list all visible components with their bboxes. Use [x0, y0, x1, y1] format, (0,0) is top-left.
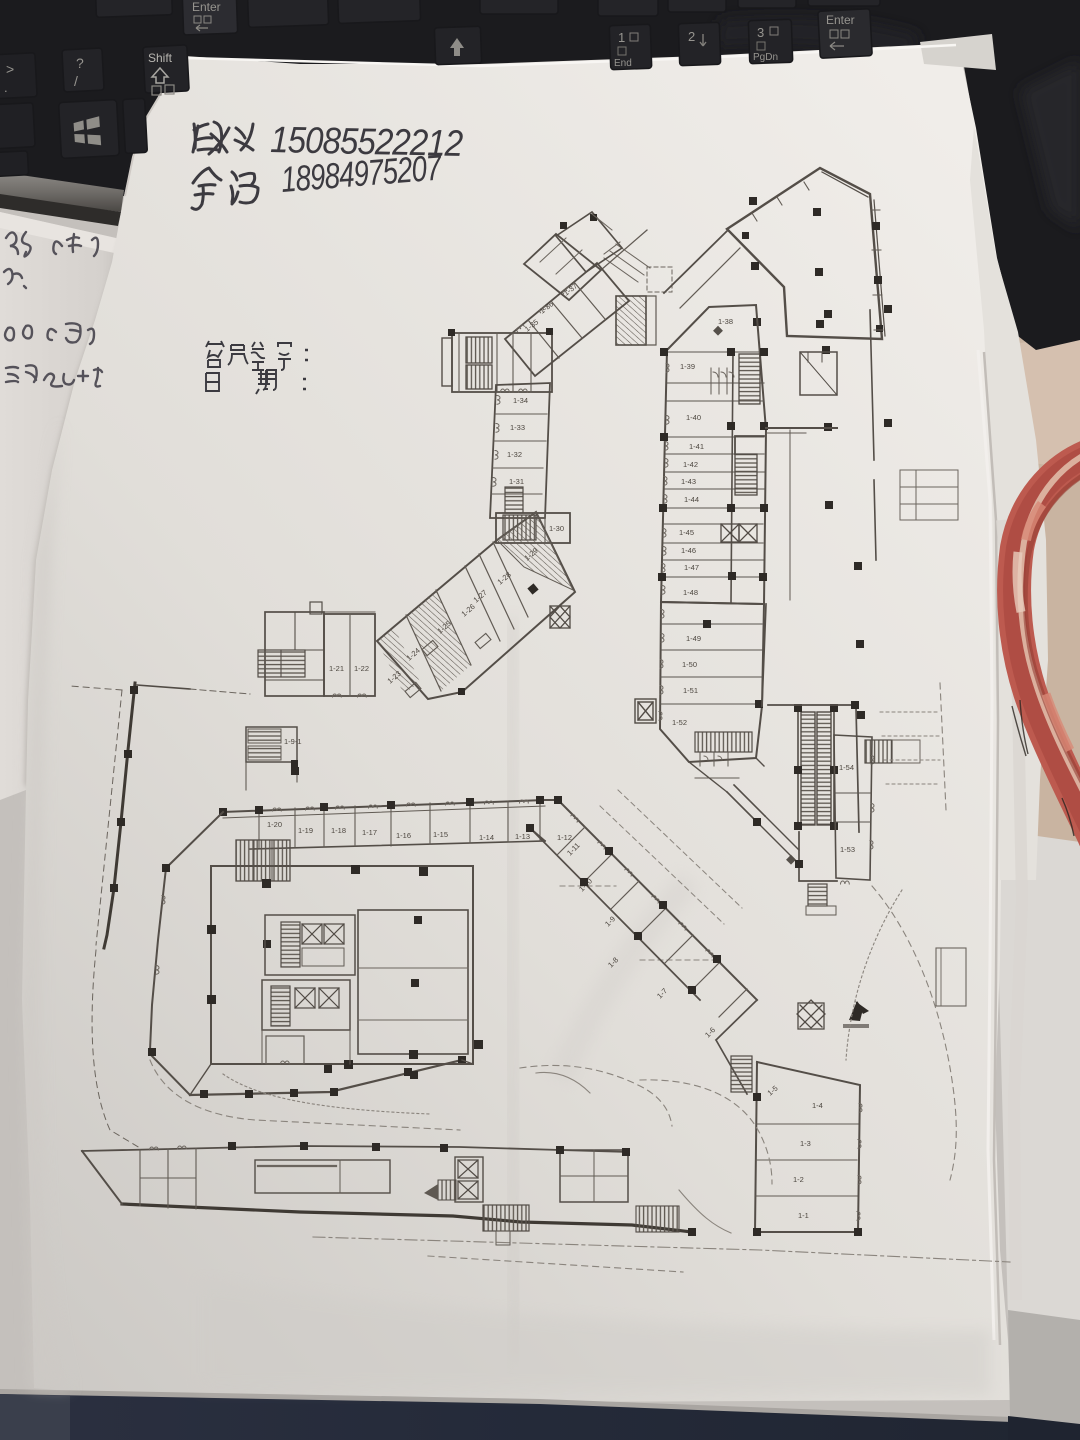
svg-text:1-53: 1-53: [840, 845, 855, 854]
svg-text:1-1: 1-1: [798, 1211, 809, 1220]
svg-text:1-39: 1-39: [680, 362, 695, 371]
svg-text:1-4: 1-4: [812, 1101, 823, 1110]
svg-text:.: .: [4, 80, 8, 95]
svg-text:3: 3: [757, 25, 764, 40]
svg-text:1-46: 1-46: [681, 546, 696, 555]
svg-text:1-15: 1-15: [433, 830, 448, 839]
svg-text:1-33: 1-33: [510, 423, 525, 432]
svg-text:Enter: Enter: [826, 13, 855, 27]
svg-text:1-41: 1-41: [689, 442, 704, 451]
svg-text:1-49: 1-49: [686, 634, 701, 643]
svg-text:1-48: 1-48: [683, 588, 698, 597]
svg-text:1-22: 1-22: [354, 664, 369, 673]
svg-text:Shift: Shift: [148, 51, 173, 65]
svg-text:1-47: 1-47: [684, 563, 699, 572]
svg-text:Enter: Enter: [192, 0, 221, 14]
svg-text:1-50: 1-50: [682, 660, 697, 669]
svg-text:End: End: [614, 58, 632, 69]
svg-text:1-34: 1-34: [513, 396, 528, 405]
svg-text:1-45: 1-45: [679, 528, 694, 537]
svg-text:1-17: 1-17: [362, 828, 377, 837]
svg-text:1-13: 1-13: [515, 832, 530, 841]
svg-text:1-14: 1-14: [479, 833, 494, 842]
svg-text:1-31: 1-31: [509, 477, 524, 486]
svg-text:1-9-1: 1-9-1: [284, 737, 302, 746]
svg-text:>: >: [6, 61, 14, 77]
svg-text:1-32: 1-32: [507, 450, 522, 459]
svg-text:1-20: 1-20: [267, 820, 282, 829]
svg-text:1-12: 1-12: [557, 833, 572, 842]
svg-text:1-40: 1-40: [686, 413, 701, 422]
svg-text:1-16: 1-16: [396, 831, 411, 840]
svg-text:1-42: 1-42: [683, 460, 698, 469]
svg-text:?: ?: [76, 55, 84, 71]
svg-text:PgDn: PgDn: [753, 52, 778, 63]
svg-text:1-54: 1-54: [839, 763, 854, 772]
svg-text:1-51: 1-51: [683, 686, 698, 695]
svg-text:1-52: 1-52: [672, 718, 687, 727]
svg-text:1-44: 1-44: [684, 495, 699, 504]
svg-text:1-2: 1-2: [793, 1175, 804, 1184]
svg-text:1-3: 1-3: [800, 1139, 811, 1148]
svg-text:1-38: 1-38: [718, 317, 733, 326]
svg-text:1-21: 1-21: [329, 664, 344, 673]
svg-text:2: 2: [688, 29, 695, 44]
svg-text:1-18: 1-18: [331, 826, 346, 835]
svg-text:1-19: 1-19: [298, 826, 313, 835]
svg-text:/: /: [74, 73, 78, 89]
svg-text:1-30: 1-30: [549, 524, 564, 533]
svg-text:1: 1: [618, 30, 625, 45]
svg-text:1-43: 1-43: [681, 477, 696, 486]
